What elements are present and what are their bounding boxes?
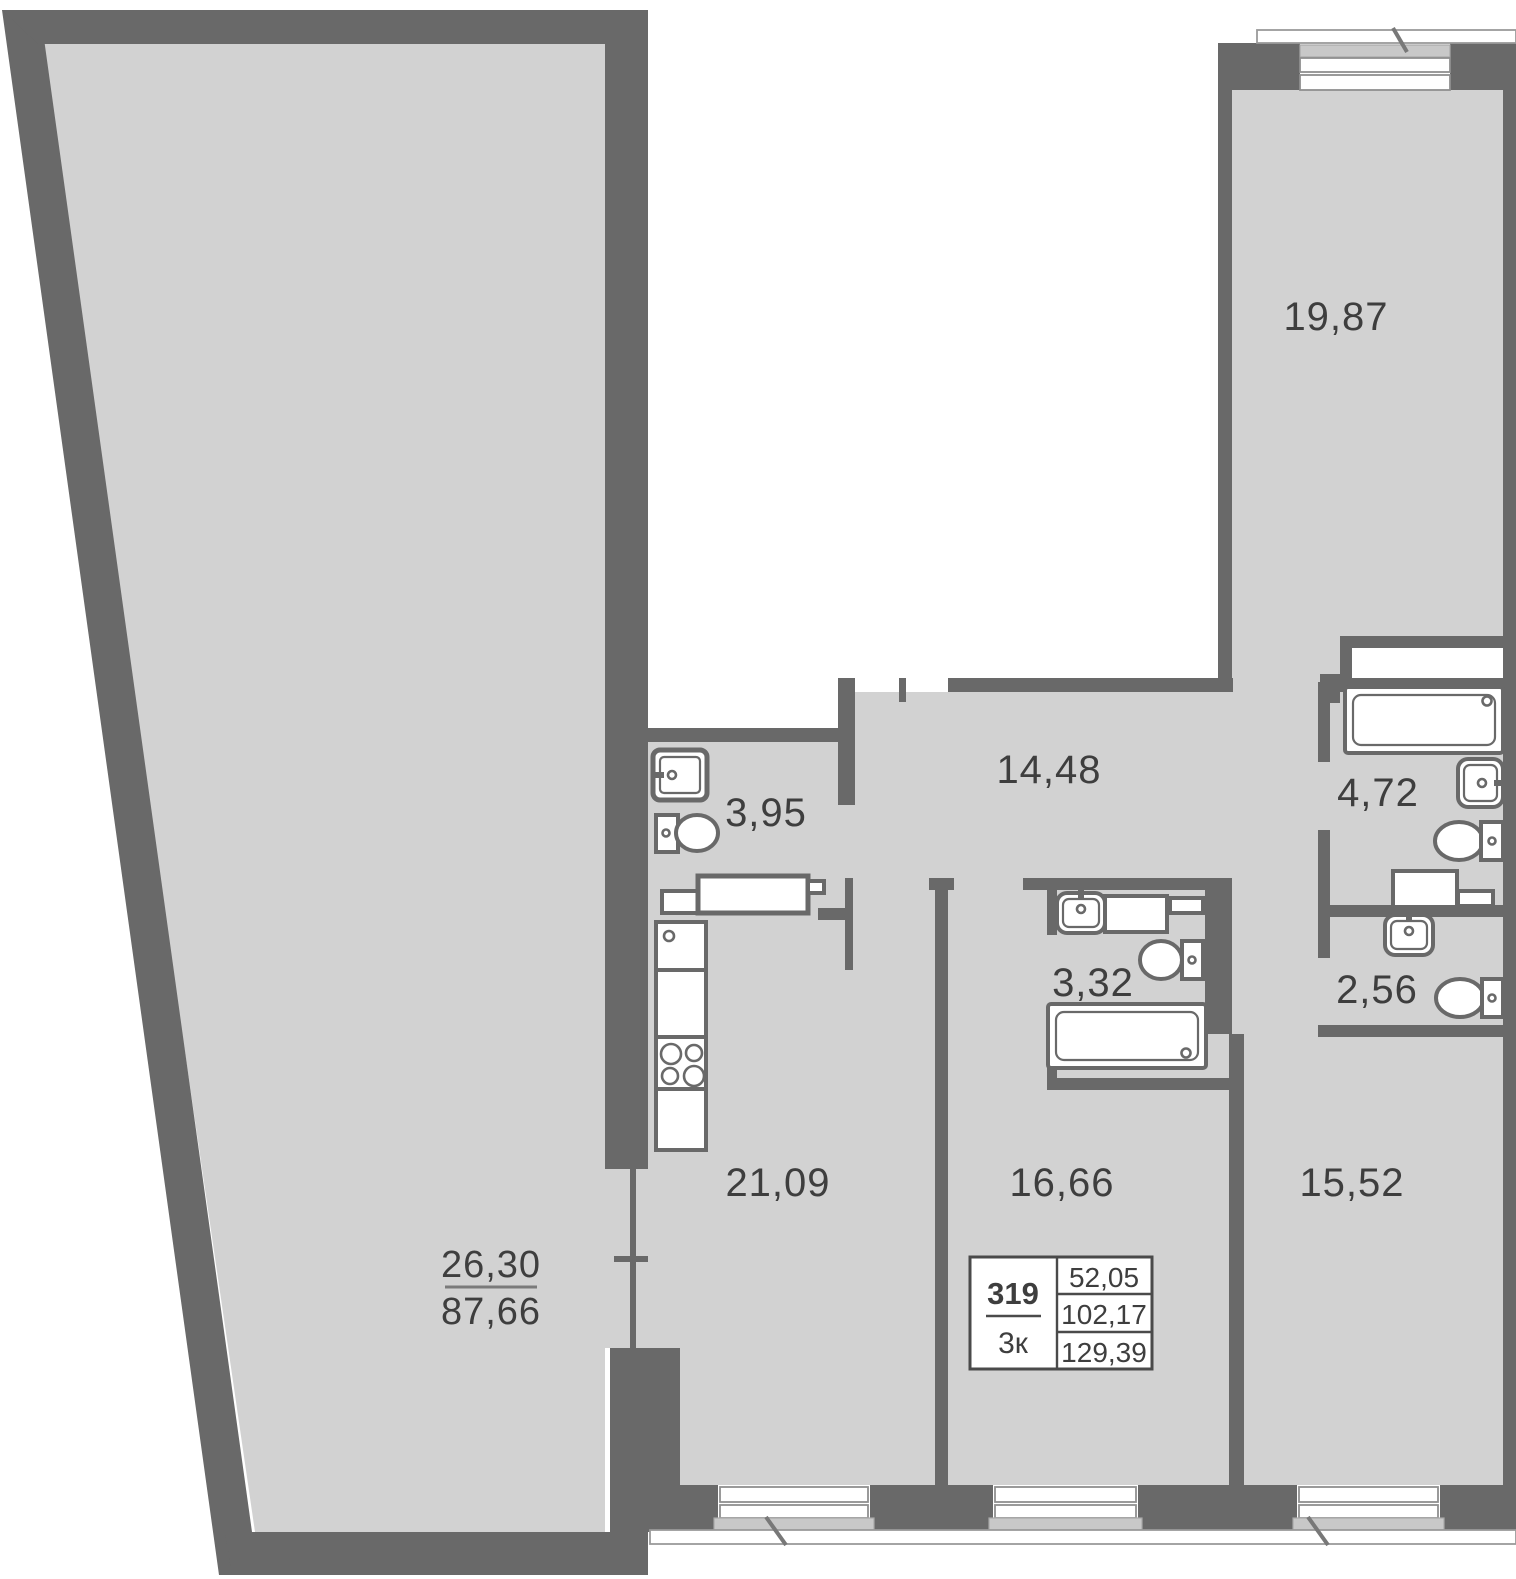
- room-area-hallway: 14,48: [996, 748, 1101, 792]
- area-living-value: 52,05: [1069, 1262, 1139, 1293]
- kitchen-sink-icon: [656, 922, 706, 970]
- window-pane: [1299, 1505, 1438, 1518]
- kitchen-counter: [656, 970, 706, 1037]
- window-pane: [1299, 1487, 1438, 1502]
- room-area-bathroom-second: 3,32: [1052, 961, 1134, 1005]
- floor-plan-svg: 19,87 14,48 3,95 4,72 3,32 2,56 21,09 16…: [0, 0, 1516, 1579]
- window-sill-bottom: [714, 1518, 874, 1530]
- toilet-cistern: [1482, 979, 1503, 1017]
- outer-wall-bottom-d: [1440, 1485, 1516, 1530]
- outer-wall-bottom-a: [648, 1485, 718, 1530]
- shelf: [1170, 898, 1203, 913]
- window-sill-bottom: [989, 1518, 1142, 1530]
- cabinet-small: [808, 881, 824, 893]
- bathroom-main-west-wall-a: [1318, 682, 1330, 762]
- unit-number: 319: [987, 1276, 1039, 1311]
- window-pane: [1300, 58, 1450, 72]
- outer-wall-bottom-terrace: [225, 1532, 648, 1575]
- hall-closet-wall-vertical: [845, 878, 853, 970]
- room-area-bedroom-middle: 16,66: [1009, 1161, 1114, 1205]
- closet: [1352, 648, 1503, 678]
- terrace-glass-tick: [614, 1256, 648, 1262]
- washing-machine: [1393, 871, 1457, 907]
- wardrobe: [698, 876, 808, 913]
- kitchen-counter: [656, 1089, 706, 1150]
- outer-wall-top-right-a: [1218, 43, 1300, 90]
- window-pane: [720, 1487, 868, 1502]
- kitchen-fixtures: [656, 922, 706, 1150]
- terrace-area-numerator: 26,30: [441, 1244, 541, 1286]
- terrace-area-denominator: 87,66: [441, 1291, 541, 1333]
- unit-info-table: 319 3к 52,05 102,17 129,39: [970, 1257, 1152, 1369]
- toilet-icon: [1436, 979, 1484, 1017]
- outer-wall-bottom-c: [1138, 1485, 1297, 1530]
- bathtub-icon: [1048, 1004, 1206, 1068]
- room-area-wc-guest: 2,56: [1336, 968, 1418, 1012]
- bathroom-second-bottom-wall: [1047, 1078, 1232, 1090]
- window-pane: [720, 1505, 868, 1518]
- cabinet: [662, 891, 698, 913]
- toilet-cistern: [1182, 941, 1203, 979]
- bathroom-second-east-wall: [1205, 878, 1232, 1034]
- unit-type: 3к: [998, 1327, 1029, 1360]
- bathtub-icon: [1345, 687, 1503, 753]
- kitchen-bedroom-divider-cap: [929, 878, 954, 890]
- hallway-bottom-wall: [1023, 878, 1232, 890]
- counter: [1105, 896, 1167, 932]
- faucet-bar: [1078, 890, 1084, 899]
- area-total-value: 102,17: [1061, 1299, 1147, 1330]
- balcony-ledge-top: [1257, 30, 1516, 43]
- shelf: [1458, 891, 1493, 906]
- bedroom-right-west-wall: [1229, 1034, 1244, 1485]
- room-area-wc-small: 3,95: [725, 791, 807, 835]
- faucet-bar: [653, 772, 664, 778]
- toilet-icon: [1435, 822, 1483, 860]
- room-area-bedroom-right: 15,52: [1299, 1161, 1404, 1205]
- room-area-bathroom-main: 4,72: [1337, 771, 1419, 815]
- window-pane: [995, 1505, 1136, 1518]
- entrance-door-tick: [899, 678, 906, 702]
- toilet-icon: [1140, 941, 1182, 979]
- hall-closet-wall-horizontal: [818, 908, 853, 920]
- terrace-right-wall: [605, 10, 648, 1169]
- kitchen-bedroom-divider-wall: [935, 881, 948, 1485]
- bedroom-top-west-wall: [1218, 43, 1232, 692]
- outer-wall-top-terrace: [2, 10, 648, 44]
- window-pane: [1300, 75, 1450, 90]
- room-area-kitchen-living: 21,09: [725, 1161, 830, 1205]
- faucet-bar: [1406, 912, 1412, 921]
- terrace-area-label: 26,30 87,66: [441, 1244, 541, 1333]
- toilet-cistern: [1481, 822, 1503, 860]
- outer-wall-bottom-b: [870, 1485, 993, 1530]
- bathroom-main-west-wall-b: [1318, 830, 1330, 958]
- window-sill-top: [1300, 45, 1450, 57]
- wc-small-top-wall: [648, 728, 853, 742]
- hallway-top-wall: [948, 678, 1233, 692]
- wc-small-east-wall: [838, 678, 855, 805]
- toilet-icon: [676, 815, 718, 851]
- area-with-summer-value: 129,39: [1061, 1337, 1147, 1368]
- faucet-bar: [1494, 780, 1503, 786]
- room-area-bedroom-top: 19,87: [1283, 295, 1388, 339]
- floor-plan-page: 19,87 14,48 3,95 4,72 3,32 2,56 21,09 16…: [0, 0, 1516, 1579]
- wc-guest-bottom-wall: [1318, 1025, 1503, 1037]
- floors: [38, 44, 1503, 1532]
- window-pane: [995, 1487, 1136, 1502]
